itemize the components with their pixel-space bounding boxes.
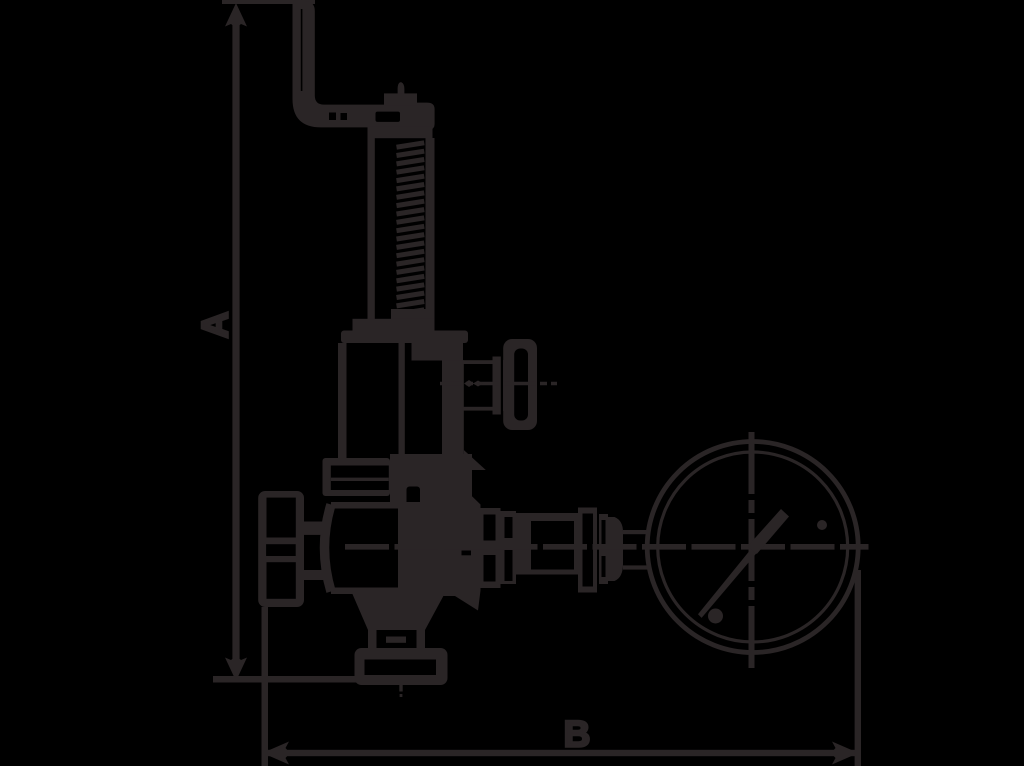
svg-text:B: B [564,714,591,755]
svg-text:A: A [195,312,236,339]
